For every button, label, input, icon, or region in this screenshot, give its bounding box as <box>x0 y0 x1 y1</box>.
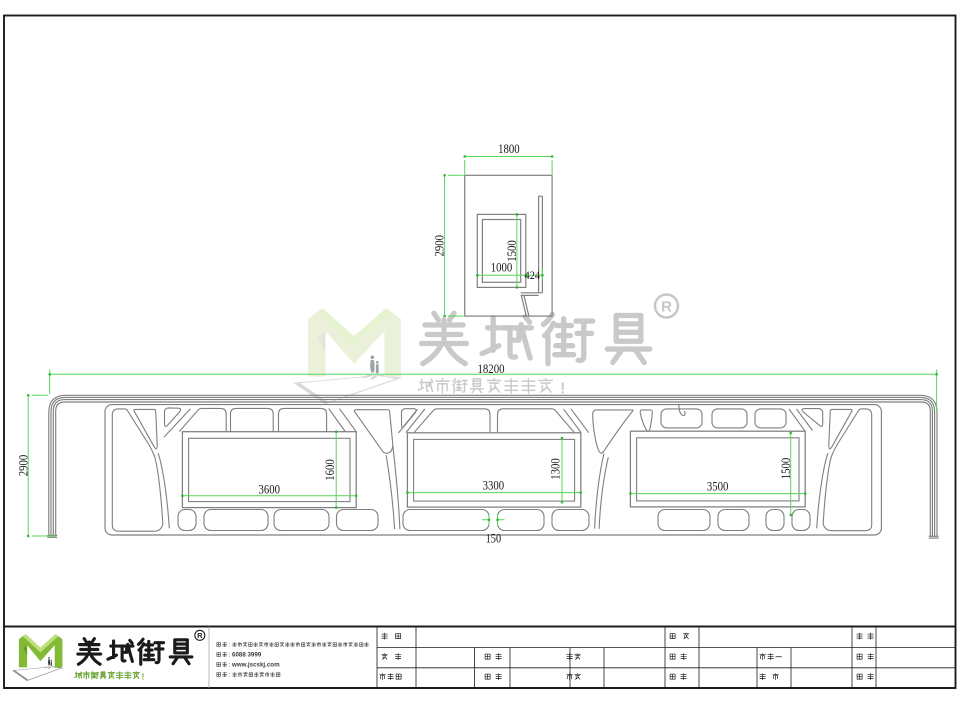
svg-text:1500: 1500 <box>505 240 519 262</box>
svg-text:1500: 1500 <box>779 458 793 480</box>
svg-text:R: R <box>197 631 203 640</box>
svg-text:1800: 1800 <box>498 142 520 156</box>
svg-text:1000: 1000 <box>491 260 513 274</box>
svg-text:3500: 3500 <box>707 480 729 494</box>
svg-text:2900: 2900 <box>432 235 446 257</box>
svg-text:18200: 18200 <box>478 362 505 376</box>
svg-text:1300: 1300 <box>549 458 563 480</box>
svg-text:6088 3999: 6088 3999 <box>232 652 262 659</box>
svg-text:150: 150 <box>486 531 502 545</box>
svg-text:!: ! <box>142 671 145 681</box>
svg-text:www.jscskj.com: www.jscskj.com <box>231 662 280 669</box>
svg-text:1600: 1600 <box>323 459 337 481</box>
svg-text:424: 424 <box>525 270 541 282</box>
svg-text:2900: 2900 <box>17 455 31 477</box>
svg-text:3300: 3300 <box>483 479 505 493</box>
svg-text:R: R <box>661 299 672 316</box>
svg-text:3600: 3600 <box>259 483 281 497</box>
